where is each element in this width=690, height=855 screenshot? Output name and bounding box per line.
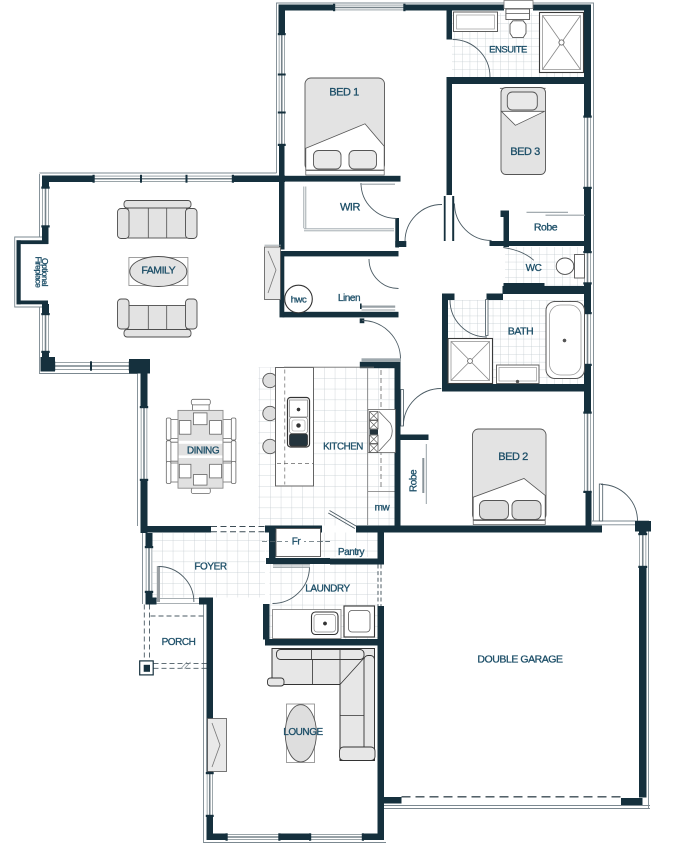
svg-text:BED 2: BED 2 xyxy=(498,451,528,463)
svg-text:BED 1: BED 1 xyxy=(329,87,359,99)
svg-text:KITCHEN: KITCHEN xyxy=(323,442,363,453)
svg-text:Fr: Fr xyxy=(292,537,302,548)
svg-text:PORCH: PORCH xyxy=(162,637,196,648)
svg-text:Pantry: Pantry xyxy=(338,547,365,558)
svg-text:mw: mw xyxy=(375,503,391,514)
svg-text:BATH: BATH xyxy=(508,326,533,338)
svg-text:hwc: hwc xyxy=(291,295,307,306)
svg-text:DOUBLE GARAGE: DOUBLE GARAGE xyxy=(477,654,563,666)
svg-text:WC: WC xyxy=(526,263,542,274)
svg-text:FAMILY: FAMILY xyxy=(141,265,175,277)
svg-text:Robe: Robe xyxy=(534,222,558,234)
svg-text:BED 3: BED 3 xyxy=(510,146,540,158)
svg-text:Robe: Robe xyxy=(409,469,420,492)
svg-text:Fireplace: Fireplace xyxy=(33,257,43,289)
svg-text:WIR: WIR xyxy=(340,202,361,214)
svg-text:FOYER: FOYER xyxy=(194,562,226,573)
svg-text:ENSUITE: ENSUITE xyxy=(489,45,527,56)
svg-text:LOUNGE: LOUNGE xyxy=(283,727,323,738)
svg-text:LAUNDRY: LAUNDRY xyxy=(305,584,350,595)
svg-text:Linen: Linen xyxy=(338,293,360,304)
svg-text:DINING: DINING xyxy=(187,446,220,457)
